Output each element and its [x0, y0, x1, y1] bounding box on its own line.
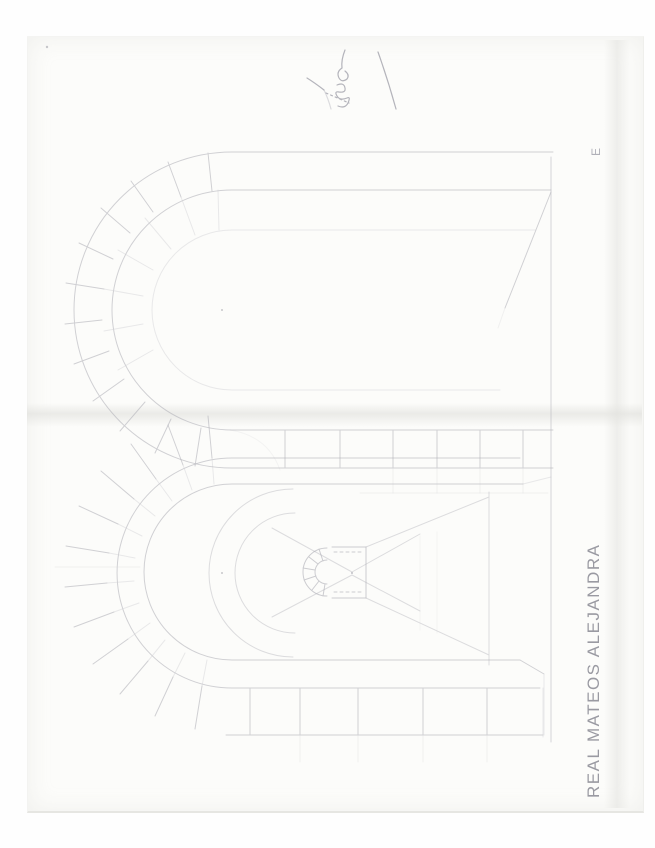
- back-arch-lines: [65, 152, 553, 493]
- vanishing-point-doorway: [303, 547, 366, 598]
- corner-letter-text: E: [589, 148, 603, 156]
- student-name-text: REAL MATEOS ALEJANDRA: [584, 544, 604, 798]
- scan-page: REAL MATEOS ALEJANDRA E: [0, 0, 655, 848]
- scan-speck: [46, 46, 48, 48]
- perspective-drawing: [0, 0, 655, 848]
- handwritten-grade-mark: [307, 50, 396, 109]
